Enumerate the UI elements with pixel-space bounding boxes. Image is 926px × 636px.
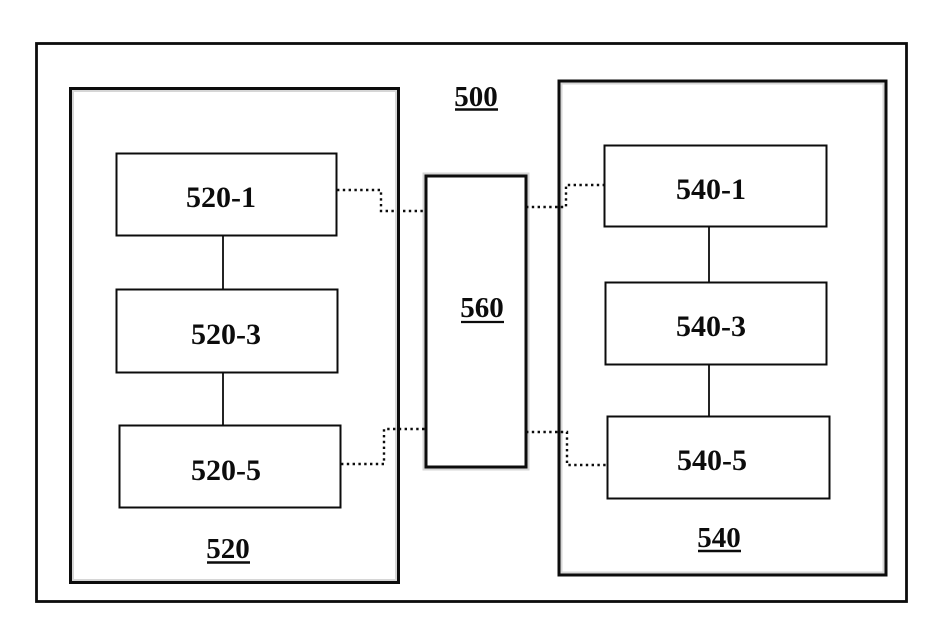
svg-text:520-5: 520-5: [191, 454, 261, 487]
svg-text:520-3: 520-3: [191, 318, 261, 351]
svg-text:520: 520: [206, 533, 250, 565]
svg-text:540: 540: [697, 522, 741, 554]
svg-text:520-1: 520-1: [186, 181, 256, 214]
svg-text:540-5: 540-5: [677, 444, 747, 477]
svg-text:540-1: 540-1: [676, 173, 746, 206]
svg-text:540-3: 540-3: [676, 310, 746, 343]
svg-text:560: 560: [460, 292, 504, 324]
